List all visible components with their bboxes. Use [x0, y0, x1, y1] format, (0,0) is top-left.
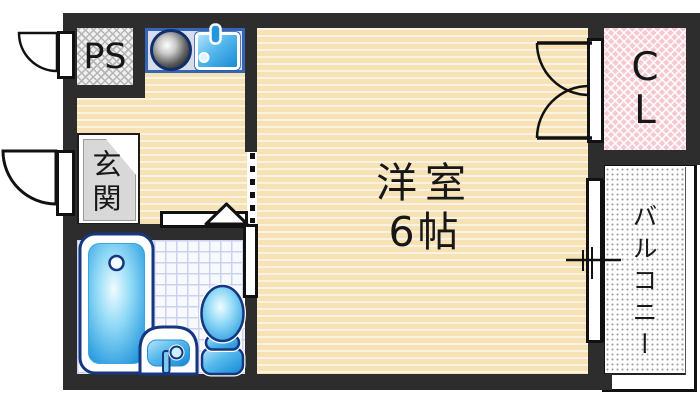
- wall-top: [63, 13, 700, 28]
- entrance-label: 玄関: [91, 141, 126, 225]
- room-size: 6帖: [325, 208, 525, 256]
- wall-bottom: [63, 374, 612, 390]
- floor-plan: PS 玄関 洋室 6帖 C L バルコニー: [0, 0, 700, 415]
- room-name: 洋室: [325, 158, 525, 208]
- bathroom-area: [77, 240, 245, 374]
- dashed-line: [250, 153, 255, 223]
- closet-label-char-1: C: [604, 46, 686, 89]
- balcony-window: [586, 178, 603, 343]
- pipe-space-label: PS: [77, 28, 133, 85]
- wall-kitchen-room: [245, 28, 257, 152]
- wall-ps-bottom: [63, 85, 145, 98]
- wall-room-right-lower: [588, 342, 604, 390]
- closet-door-frame: [587, 38, 604, 143]
- ps-door-leaf: [57, 31, 75, 79]
- balcony-label: バルコニー: [628, 183, 661, 383]
- entrance-door-leaf: [56, 150, 75, 216]
- room-boundary-dashed: [247, 152, 257, 224]
- closet-label-char-2: L: [604, 89, 686, 132]
- bath-sliding-door: [160, 211, 248, 228]
- kitchen-counter: [145, 28, 245, 73]
- ps-door-swing-icon: [19, 33, 57, 71]
- wall-bath-right: [245, 297, 257, 374]
- wall-closet-right: [686, 13, 700, 165]
- bath-door-panel: [243, 224, 258, 298]
- closet-label: C L: [604, 46, 686, 132]
- room-label: 洋室 6帖: [325, 158, 525, 256]
- entrance-door-swing-icon: [3, 151, 56, 204]
